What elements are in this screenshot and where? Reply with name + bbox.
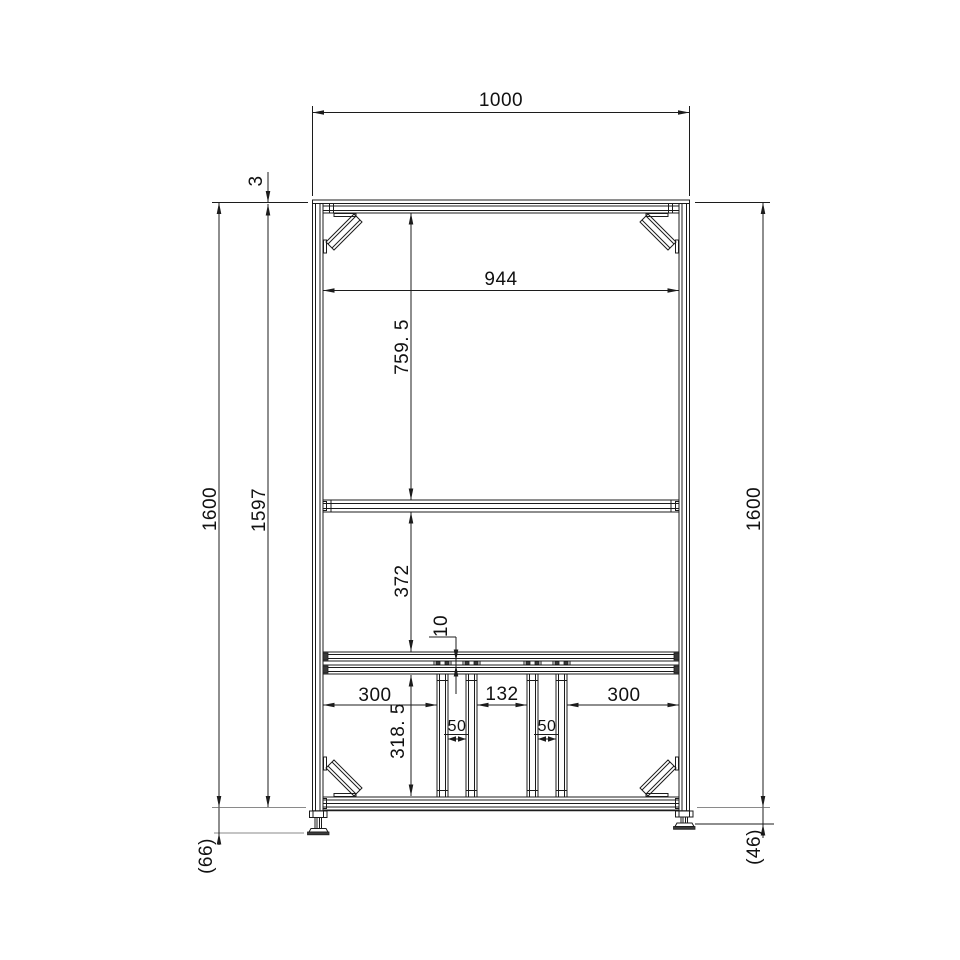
dim-upper-bay: 759. 5 bbox=[392, 213, 413, 500]
top-plate bbox=[313, 200, 690, 204]
dim-inner-width: 944 bbox=[323, 269, 679, 293]
rail-connector bbox=[463, 661, 480, 665]
dim-label-overall-height-left: 1600 bbox=[200, 487, 221, 531]
dim-label-frame-height: 1597 bbox=[249, 488, 270, 532]
dim-lower-bay: 318. 5 bbox=[388, 675, 413, 796]
middle-shelf-rail bbox=[323, 500, 679, 512]
dim-label-span-right: 300 bbox=[607, 685, 640, 706]
dim-span-left: 300 bbox=[323, 685, 437, 707]
dim-label-overall-width: 1000 bbox=[479, 90, 523, 111]
dim-label-overall-height-right: 1600 bbox=[744, 487, 765, 531]
right-post bbox=[679, 204, 690, 812]
frame-structure bbox=[308, 200, 696, 835]
dim-middle-bay: 372 bbox=[392, 512, 413, 652]
dim-label-span-left: 300 bbox=[358, 685, 391, 706]
rail-connector bbox=[524, 661, 541, 665]
dim-label-plate-thickness: 3 bbox=[246, 175, 267, 186]
lower-rail-lower bbox=[323, 665, 679, 674]
dim-span-right: 300 bbox=[567, 685, 679, 707]
dim-foot-right: (46) bbox=[695, 808, 774, 865]
dim-span-center: 132 bbox=[477, 684, 527, 707]
dim-label-foot-left: (66) bbox=[196, 838, 217, 874]
dim-label-lower-bay: 318. 5 bbox=[388, 703, 409, 759]
dim-label-rail-gap: 10 bbox=[431, 615, 452, 637]
support-post-3 bbox=[527, 674, 538, 797]
dim-overall-width: 1000 bbox=[313, 90, 690, 196]
gusset-bottom-left bbox=[324, 757, 363, 797]
dim-plate-thickness: 3 bbox=[246, 172, 270, 203]
top-rail bbox=[323, 204, 679, 214]
gusset-bottom-right bbox=[640, 757, 679, 797]
left-post bbox=[313, 204, 324, 812]
technical-drawing-canvas: 1000 944 1600 1597 3 759. 5 bbox=[0, 0, 960, 960]
dim-label-gap-left: 50 bbox=[448, 718, 467, 735]
dim-overall-height-right: 1600 bbox=[695, 203, 770, 808]
dim-label-inner-width: 944 bbox=[484, 269, 517, 290]
drawing-page: 1000 944 1600 1597 3 759. 5 bbox=[0, 0, 960, 960]
bottom-rail bbox=[313, 797, 690, 811]
rail-connectors bbox=[434, 661, 570, 665]
dim-label-span-center: 132 bbox=[485, 684, 518, 705]
rail-connector bbox=[553, 661, 570, 665]
support-post-4 bbox=[556, 674, 567, 797]
lower-rail-upper bbox=[323, 652, 679, 661]
dim-frame-height: 1597 bbox=[249, 204, 270, 808]
support-post-2 bbox=[466, 674, 477, 797]
dim-label-middle-bay: 372 bbox=[392, 564, 413, 597]
dim-foot-left: (66) bbox=[196, 808, 306, 874]
gusset-top-left bbox=[324, 214, 363, 254]
dim-label-foot-right: (46) bbox=[744, 829, 765, 865]
dim-label-upper-bay: 759. 5 bbox=[392, 319, 413, 375]
left-leveling-foot bbox=[308, 811, 330, 835]
right-leveling-foot bbox=[674, 811, 696, 829]
support-post-1 bbox=[437, 674, 448, 797]
gusset-top-right bbox=[640, 214, 679, 254]
rail-connector bbox=[434, 661, 451, 665]
dim-label-gap-right: 50 bbox=[538, 718, 557, 735]
